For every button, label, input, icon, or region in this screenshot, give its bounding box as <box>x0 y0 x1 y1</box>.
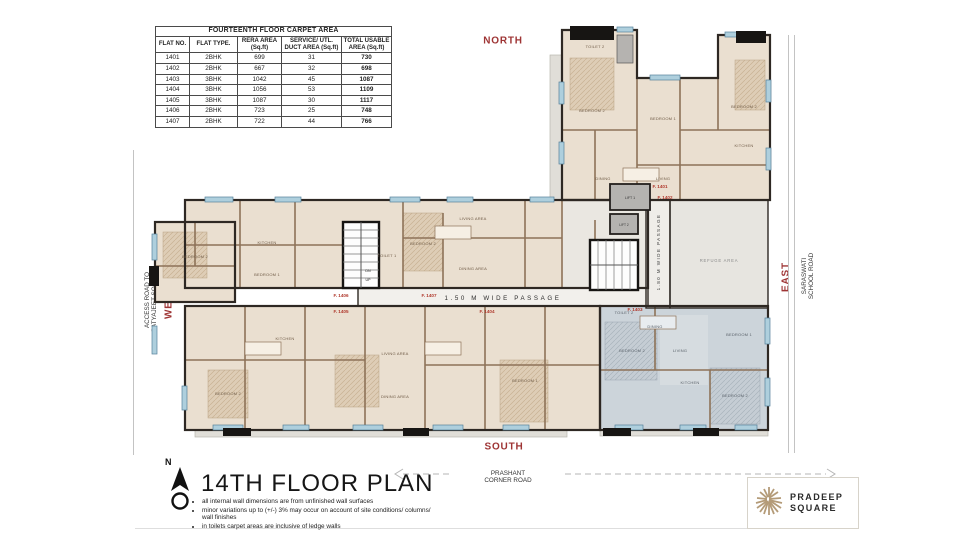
brand-name: PRADEEP SQUARE <box>790 492 843 514</box>
svg-text:BEDROOM 1: BEDROOM 1 <box>512 378 538 383</box>
svg-text:DINING: DINING <box>647 324 662 329</box>
flat-label-1407: F. 1407 <box>421 293 437 298</box>
svg-text:DINING AREA: DINING AREA <box>459 266 487 271</box>
east-road-edge-line-2 <box>794 35 795 453</box>
label-east: EAST <box>781 262 792 292</box>
svg-text:LIVING AREA: LIVING AREA <box>381 351 408 356</box>
page-title: 14TH FLOOR PLAN <box>201 470 433 498</box>
svg-text:TOILET 1: TOILET 1 <box>378 253 397 258</box>
lift-2-label: LIFT 2 <box>619 223 629 227</box>
flat-label-1405: F. 1405 <box>333 309 349 314</box>
svg-text:BEDROOM 2: BEDROOM 2 <box>215 391 241 396</box>
refuge-area-label: REFUGE AREA <box>700 258 739 263</box>
stair-up-label: UP <box>366 278 372 282</box>
west-road-edge-line <box>133 150 134 455</box>
flat-label-1406: F. 1406 <box>333 293 349 298</box>
stair-dn-label: DN <box>365 269 371 273</box>
svg-text:BEDROOM 1: BEDROOM 1 <box>726 332 752 337</box>
staircase-right <box>590 240 638 290</box>
passage-horizontal-label: 1.50 M WIDE PASSAGE <box>444 295 561 302</box>
svg-text:KITCHEN: KITCHEN <box>276 336 295 341</box>
svg-text:KITCHEN: KITCHEN <box>681 380 700 385</box>
svg-text:TOILET 2: TOILET 2 <box>586 44 605 49</box>
duct-box <box>617 35 633 63</box>
svg-text:BEDROOM 2: BEDROOM 2 <box>410 241 436 246</box>
sunburst-icon <box>754 481 784 525</box>
passage-vertical-label: 1.80 M WIDE PASSAGE <box>656 214 661 291</box>
note-item: all internal wall dimensions are from un… <box>202 498 442 506</box>
svg-text:BEDROOM 2: BEDROOM 2 <box>619 348 645 353</box>
svg-text:LIVING: LIVING <box>673 348 687 353</box>
svg-text:KITCHEN: KITCHEN <box>735 143 754 148</box>
lift-1-label: LIFT 1 <box>625 196 635 200</box>
staircase-left <box>343 222 379 288</box>
brand-logo: PRADEEP SQUARE <box>747 477 859 529</box>
svg-text:DINING: DINING <box>595 176 610 181</box>
svg-text:LIVING: LIVING <box>656 176 670 181</box>
svg-text:KITCHEN: KITCHEN <box>258 240 277 245</box>
lift-2: LIFT 2 <box>610 214 638 234</box>
flat-label-1404: F. 1404 <box>479 309 495 314</box>
notes-list: all internal wall dimensions are from un… <box>192 498 442 531</box>
flat-label-1401: F. 1401 <box>652 184 668 189</box>
lift-1: LIFT 1 <box>610 184 650 210</box>
floor-plan-sheet: FOURTEENTH FLOOR CARPET AREA FLAT NO. FL… <box>0 0 957 533</box>
svg-text:BEDROOM 1: BEDROOM 1 <box>254 272 280 277</box>
note-item: in toilets carpet areas are inclusive of… <box>202 523 442 531</box>
svg-text:BEDROOM 2: BEDROOM 2 <box>579 108 605 113</box>
svg-text:DINING AREA: DINING AREA <box>381 394 409 399</box>
svg-text:BEDROOM 1: BEDROOM 1 <box>650 116 676 121</box>
flat-label-1402: F. 1402 <box>657 195 673 200</box>
svg-text:TOILET 2: TOILET 2 <box>615 310 634 315</box>
floor-plan-drawing: LIFT 1 LIFT 2 1.50 M WIDE PASSAGE 1.80 M… <box>135 20 780 445</box>
svg-text:BEDROOM 2: BEDROOM 2 <box>722 393 748 398</box>
svg-text:LIVING AREA: LIVING AREA <box>459 216 486 221</box>
north-letter: N <box>165 457 172 467</box>
svg-text:BEDROOM 2: BEDROOM 2 <box>731 104 757 109</box>
label-east-road: SARASWATI SCHOOL ROAD <box>801 253 815 299</box>
svg-text:BEDROOM 2: BEDROOM 2 <box>182 254 208 259</box>
note-item: minor variations up to (+/-) 3% may occu… <box>202 507 442 522</box>
east-road-edge-line <box>788 35 789 453</box>
